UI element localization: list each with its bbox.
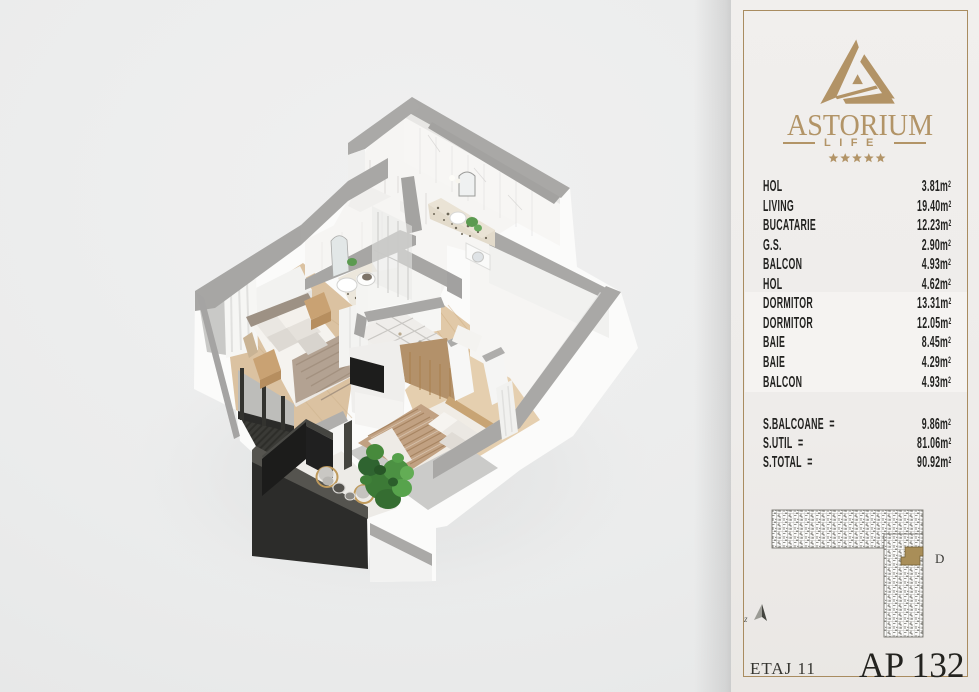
svg-text:D: D [935,551,944,566]
svg-text:z: z [743,614,748,624]
